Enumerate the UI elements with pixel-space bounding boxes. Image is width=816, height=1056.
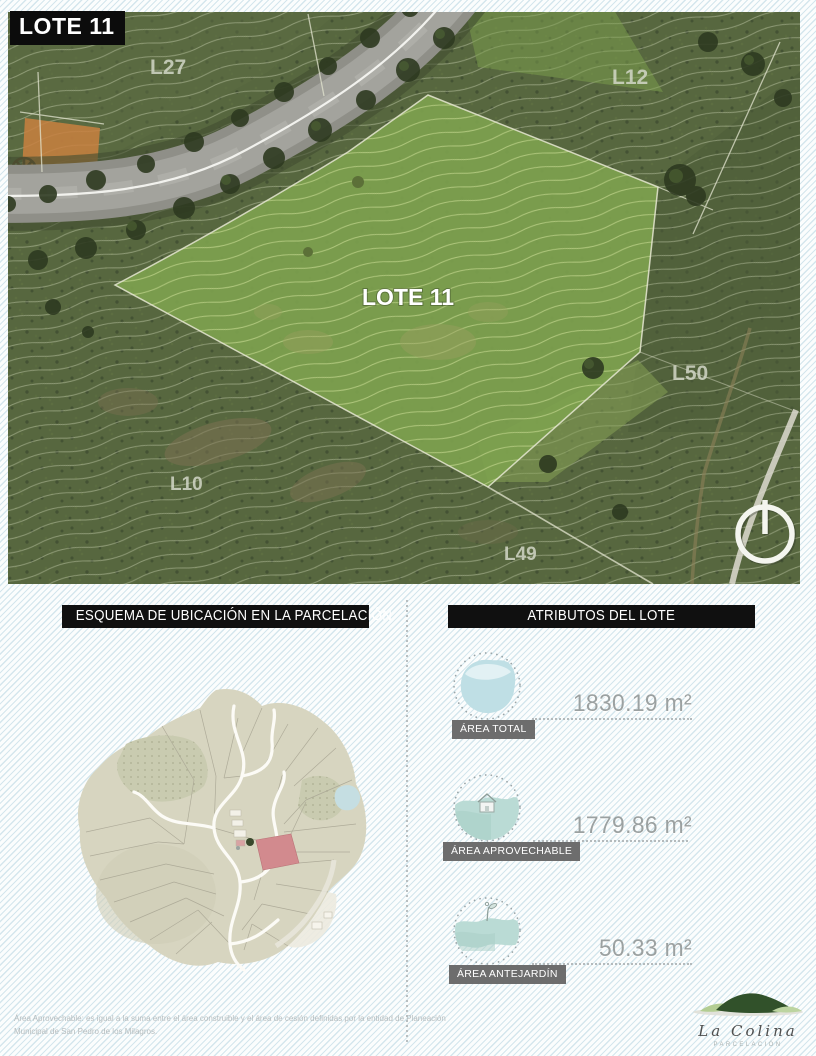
brand-logo: La Colina PARCELACIÓN	[686, 988, 810, 1048]
label-l10: L10	[170, 474, 203, 495]
label-l49: L49	[504, 544, 537, 565]
leader-line	[532, 718, 692, 720]
location-section-header: ESQUEMA DE UBICACIÓN EN LA PARCELACIÓN	[62, 605, 369, 628]
area-antejardin-value: 50.33 m²	[453, 935, 692, 963]
brand-name: La Colina	[686, 1022, 810, 1040]
area-antejardin-label: ÁREA ANTEJARDÍN	[449, 965, 566, 984]
section-divider	[406, 600, 408, 1042]
footnote-line-2: Municipal de San Pedro de los Milagros.	[14, 1025, 416, 1038]
attribute-row-area-total: 1830.19 m² ÁREA TOTAL	[440, 648, 760, 758]
attribute-row-area-antejardin: 50.33 m² ÁREA ANTEJARDÍN	[440, 893, 760, 1003]
house-glyph	[478, 794, 496, 812]
label-l50: L50	[672, 362, 708, 385]
area-aprovechable-label: ÁREA APROVECHABLE	[443, 842, 580, 861]
label-lote-11: LOTE 11	[362, 284, 454, 310]
aerial-photo-svg: L27 L12 L50 L10 L49 LOTE 11	[8, 12, 800, 584]
attributes-section-header: ATRIBUTOS DEL LOTE	[448, 605, 755, 628]
area-total-value: 1830.19 m²	[453, 690, 692, 718]
footnote-line-1: Área Aprovechable: es igual a la suma en…	[14, 1012, 416, 1025]
attribute-row-area-aprovechable: 1779.86 m² ÁREA APROVECHABLE	[440, 770, 760, 880]
area-total-label: ÁREA TOTAL	[452, 720, 535, 739]
aerial-photo: L27 L12 L50 L10 L49 LOTE 11	[8, 12, 800, 584]
brand-tagline: PARCELACIÓN	[686, 1042, 810, 1048]
footnote: Área Aprovechable: es igual a la suma en…	[14, 1012, 416, 1038]
sprout-glyph	[485, 902, 497, 921]
lot-sheet-page: L27 L12 L50 L10 L49 LOTE 11 LOTE 11 ESQU	[0, 0, 816, 1056]
map-tree	[246, 838, 254, 846]
area-aprovechable-value: 1779.86 m²	[453, 812, 692, 840]
pond	[335, 785, 360, 810]
label-l12: L12	[612, 66, 648, 89]
parcelacion-map	[66, 684, 380, 982]
lot-title-text: LOTE 11	[19, 13, 115, 39]
lot-title-badge: LOTE 11	[10, 11, 125, 45]
label-l27: L27	[150, 56, 186, 79]
hills-logo-icon	[688, 988, 808, 1016]
